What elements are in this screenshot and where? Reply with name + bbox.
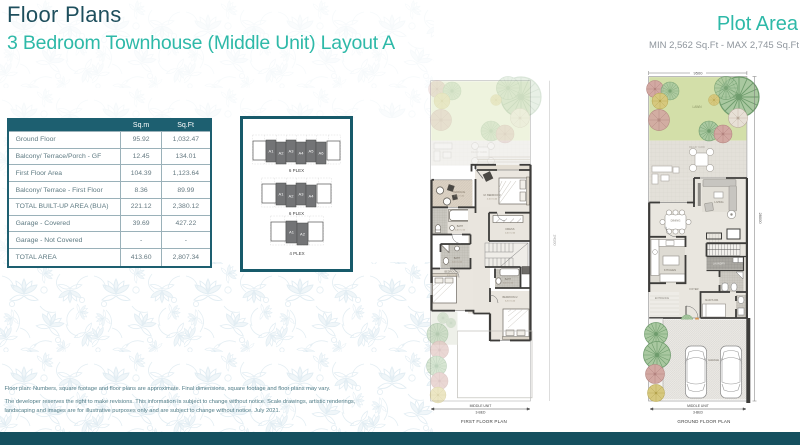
svg-text:KITCHEN: KITCHEN bbox=[664, 268, 676, 272]
svg-text:M. BEDROOM: M. BEDROOM bbox=[483, 193, 500, 197]
svg-text:REAR YARD: REAR YARD bbox=[471, 150, 487, 154]
svg-text:6 PLEX: 6 PLEX bbox=[289, 168, 304, 173]
svg-text:FOYER: FOYER bbox=[690, 287, 699, 291]
svg-text:LIVING: LIVING bbox=[714, 200, 723, 204]
svg-text:A2: A2 bbox=[300, 231, 306, 236]
svg-text:A1: A1 bbox=[279, 191, 285, 196]
svg-text:REAR YARD: REAR YARD bbox=[689, 145, 705, 149]
svg-text:4 PLEX: 4 PLEX bbox=[289, 251, 304, 256]
svg-text:BATH: BATH bbox=[454, 257, 461, 260]
svg-text:A4: A4 bbox=[309, 193, 315, 198]
svg-text:A3: A3 bbox=[289, 148, 295, 153]
svg-text:BATH: BATH bbox=[505, 278, 512, 281]
svg-text:BEDROOM 2: BEDROOM 2 bbox=[502, 296, 518, 299]
svg-text:3-BED: 3-BED bbox=[476, 411, 487, 415]
svg-text:A4: A4 bbox=[299, 150, 305, 155]
svg-text:ENTRANCE: ENTRANCE bbox=[655, 296, 670, 300]
svg-text:MAID'S RM.: MAID'S RM. bbox=[705, 299, 719, 302]
svg-text:24100: 24100 bbox=[553, 234, 558, 246]
svg-text:3.20 X 4.20: 3.20 X 4.20 bbox=[447, 275, 458, 277]
svg-text:DRESS: DRESS bbox=[506, 227, 515, 231]
svg-text:3-BED: 3-BED bbox=[693, 411, 704, 415]
svg-text:A1: A1 bbox=[289, 229, 295, 234]
svg-text:MIDDLE UNIT: MIDDLE UNIT bbox=[687, 404, 709, 408]
svg-text:A1: A1 bbox=[269, 148, 275, 153]
svg-text:28000: 28000 bbox=[758, 212, 763, 224]
svg-text:BATH: BATH bbox=[457, 225, 464, 228]
svg-text:2.00 X 2.20: 2.00 X 2.20 bbox=[503, 283, 514, 285]
svg-text:9500: 9500 bbox=[694, 70, 704, 75]
svg-text:2.00 X 2.20: 2.00 X 2.20 bbox=[452, 262, 463, 264]
svg-text:TERRACE: TERRACE bbox=[453, 190, 466, 194]
svg-text:LAUNDRY: LAUNDRY bbox=[713, 262, 726, 266]
svg-text:6 PLEX: 6 PLEX bbox=[289, 211, 304, 216]
svg-text:LAWN: LAWN bbox=[692, 105, 702, 109]
svg-text:4.10 X 4.00: 4.10 X 4.00 bbox=[487, 199, 498, 201]
svg-text:MIDDLE UNIT: MIDDLE UNIT bbox=[470, 404, 492, 408]
svg-text:A5: A5 bbox=[309, 148, 315, 153]
svg-text:2.40 X 2.00: 2.40 X 2.00 bbox=[505, 233, 516, 235]
svg-text:A2: A2 bbox=[279, 150, 285, 155]
svg-text:2.40 X 2.20: 2.40 X 2.20 bbox=[455, 230, 466, 232]
svg-text:A3: A3 bbox=[299, 191, 305, 196]
svg-text:A2: A2 bbox=[289, 193, 295, 198]
svg-text:3.20 X 4.20: 3.20 X 4.20 bbox=[505, 300, 516, 302]
svg-text:DINING: DINING bbox=[671, 219, 681, 223]
svg-text:GARAGE: GARAGE bbox=[708, 358, 719, 362]
svg-text:A6: A6 bbox=[319, 150, 325, 155]
svg-text:4.00 X 3.60: 4.00 X 3.60 bbox=[454, 196, 465, 198]
